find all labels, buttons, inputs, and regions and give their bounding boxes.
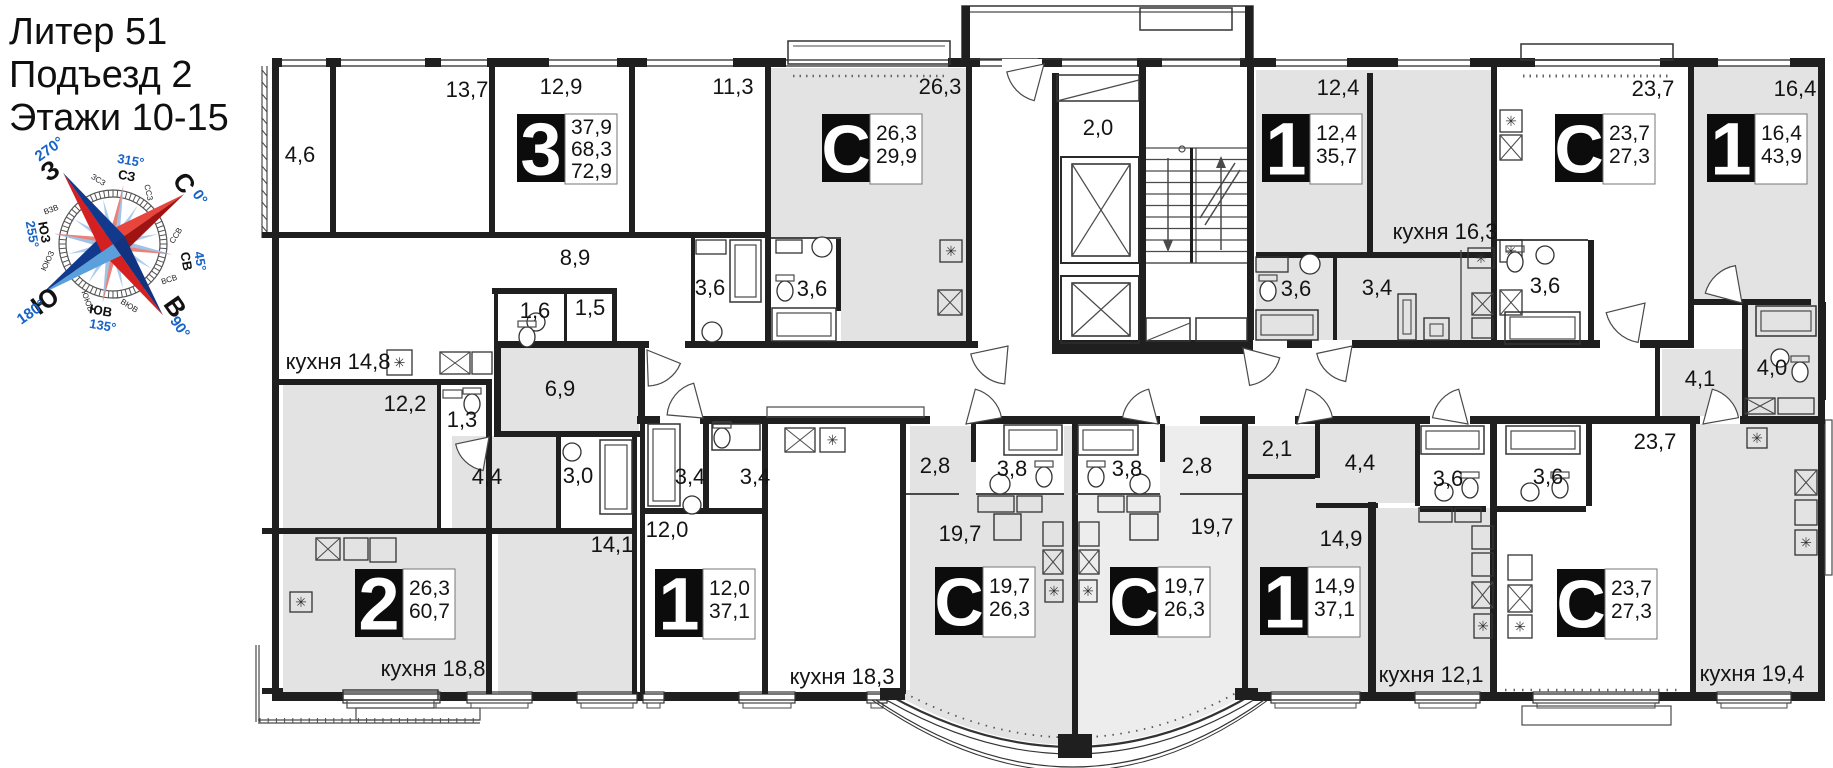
svg-text:14,9: 14,9	[1320, 526, 1363, 551]
svg-text:12,9: 12,9	[540, 74, 583, 99]
svg-text:кухня 14,8: кухня 14,8	[286, 349, 391, 374]
svg-text:1: 1	[1265, 108, 1306, 191]
svg-text:2,1: 2,1	[1262, 436, 1293, 461]
svg-text:1: 1	[1710, 108, 1751, 191]
svg-text:19,7: 19,7	[939, 521, 982, 546]
svg-text:23,7: 23,7	[1609, 122, 1650, 145]
svg-text:1: 1	[658, 563, 699, 646]
svg-text:С: С	[934, 564, 983, 640]
svg-text:✳: ✳	[945, 243, 957, 259]
svg-text:6,9: 6,9	[545, 376, 576, 401]
svg-text:43,9: 43,9	[1761, 145, 1802, 168]
svg-text:27,3: 27,3	[1609, 145, 1650, 168]
svg-text:3,8: 3,8	[1112, 456, 1143, 481]
svg-text:19,7: 19,7	[1164, 575, 1205, 598]
svg-text:кухня 18,3: кухня 18,3	[790, 664, 895, 689]
svg-text:19,7: 19,7	[1191, 514, 1234, 539]
svg-text:4,4: 4,4	[472, 464, 503, 489]
svg-text:✳: ✳	[1751, 430, 1763, 446]
svg-text:✳: ✳	[1477, 618, 1489, 634]
svg-text:14,9: 14,9	[1314, 575, 1355, 598]
svg-text:✳: ✳	[1800, 535, 1812, 551]
svg-text:26,3: 26,3	[876, 122, 917, 145]
svg-text:3: 3	[520, 108, 561, 191]
svg-text:1,3: 1,3	[447, 407, 478, 432]
svg-text:12,2: 12,2	[384, 391, 427, 416]
svg-text:✳: ✳	[1514, 619, 1526, 635]
svg-text:С: С	[1556, 566, 1605, 642]
svg-text:3,6: 3,6	[1281, 276, 1312, 301]
svg-text:26,3: 26,3	[919, 74, 962, 99]
svg-text:СЗ: СЗ	[117, 167, 137, 185]
svg-text:27,3: 27,3	[1611, 600, 1652, 623]
svg-text:✳: ✳	[1505, 113, 1517, 129]
svg-text:3,0: 3,0	[563, 463, 594, 488]
svg-text:12,4: 12,4	[1316, 122, 1357, 145]
svg-text:✳: ✳	[295, 594, 307, 610]
svg-text:✳: ✳	[1475, 250, 1487, 266]
svg-text:16,4: 16,4	[1774, 76, 1817, 101]
svg-text:68,3: 68,3	[571, 138, 612, 161]
svg-text:3,8: 3,8	[997, 456, 1028, 481]
svg-text:С: С	[1109, 564, 1158, 640]
svg-text:4,4: 4,4	[1345, 450, 1376, 475]
svg-text:✳: ✳	[827, 432, 839, 448]
svg-text:3,6: 3,6	[797, 276, 828, 301]
svg-text:2,8: 2,8	[1182, 453, 1213, 478]
svg-text:4,6: 4,6	[285, 142, 316, 167]
svg-text:23,7: 23,7	[1611, 577, 1652, 600]
svg-text:3,6: 3,6	[695, 275, 726, 300]
svg-text:12,0: 12,0	[709, 577, 750, 600]
svg-text:37,1: 37,1	[709, 600, 750, 623]
svg-text:23,7: 23,7	[1634, 429, 1677, 454]
svg-text:3,6: 3,6	[1433, 466, 1464, 491]
svg-text:3,6: 3,6	[1530, 273, 1561, 298]
svg-text:3,4: 3,4	[675, 464, 706, 489]
svg-text:12,4: 12,4	[1317, 75, 1360, 100]
svg-text:4,1: 4,1	[1685, 366, 1716, 391]
svg-text:кухня 16,3: кухня 16,3	[1393, 219, 1498, 244]
svg-text:кухня 18,8: кухня 18,8	[381, 656, 486, 681]
svg-text:13,7: 13,7	[446, 77, 489, 102]
svg-text:3,6: 3,6	[1533, 464, 1564, 489]
svg-text:23,7: 23,7	[1632, 76, 1675, 101]
svg-text:1: 1	[1263, 561, 1304, 644]
svg-text:С: С	[821, 111, 870, 187]
svg-text:14,1: 14,1	[591, 532, 634, 557]
svg-text:Литер 51: Литер 51	[9, 11, 167, 53]
svg-text:С: С	[1554, 111, 1603, 187]
svg-text:3,4: 3,4	[1362, 275, 1393, 300]
svg-text:11,3: 11,3	[712, 74, 753, 99]
svg-text:72,9: 72,9	[571, 160, 612, 183]
svg-text:12,0: 12,0	[646, 517, 689, 542]
svg-text:3,4: 3,4	[740, 464, 771, 489]
svg-text:37,9: 37,9	[571, 116, 612, 139]
svg-text:16,4: 16,4	[1761, 122, 1802, 145]
svg-text:26,3: 26,3	[989, 598, 1030, 621]
svg-text:1,5: 1,5	[575, 295, 606, 320]
svg-text:✳: ✳	[394, 355, 406, 371]
svg-text:2: 2	[358, 563, 399, 646]
svg-text:кухня 19,4: кухня 19,4	[1700, 661, 1805, 686]
svg-text:8,9: 8,9	[560, 245, 591, 270]
svg-text:19,7: 19,7	[989, 575, 1030, 598]
svg-text:37,1: 37,1	[1314, 598, 1355, 621]
svg-text:кухня 12,1: кухня 12,1	[1379, 662, 1484, 687]
svg-text:✳: ✳	[1048, 583, 1060, 599]
svg-text:Подъезд 2: Подъезд 2	[9, 54, 192, 96]
svg-text:2,0: 2,0	[1083, 115, 1114, 140]
svg-text:60,7: 60,7	[409, 600, 450, 623]
svg-text:✳: ✳	[1082, 583, 1094, 599]
svg-text:2,8: 2,8	[920, 453, 951, 478]
svg-text:29,9: 29,9	[876, 145, 917, 168]
svg-text:35,7: 35,7	[1316, 145, 1357, 168]
svg-text:26,3: 26,3	[409, 577, 450, 600]
svg-text:26,3: 26,3	[1164, 598, 1205, 621]
svg-text:1,6: 1,6	[520, 298, 551, 323]
svg-text:4,0: 4,0	[1757, 355, 1788, 380]
svg-text:Этажи 10-15: Этажи 10-15	[9, 97, 229, 139]
